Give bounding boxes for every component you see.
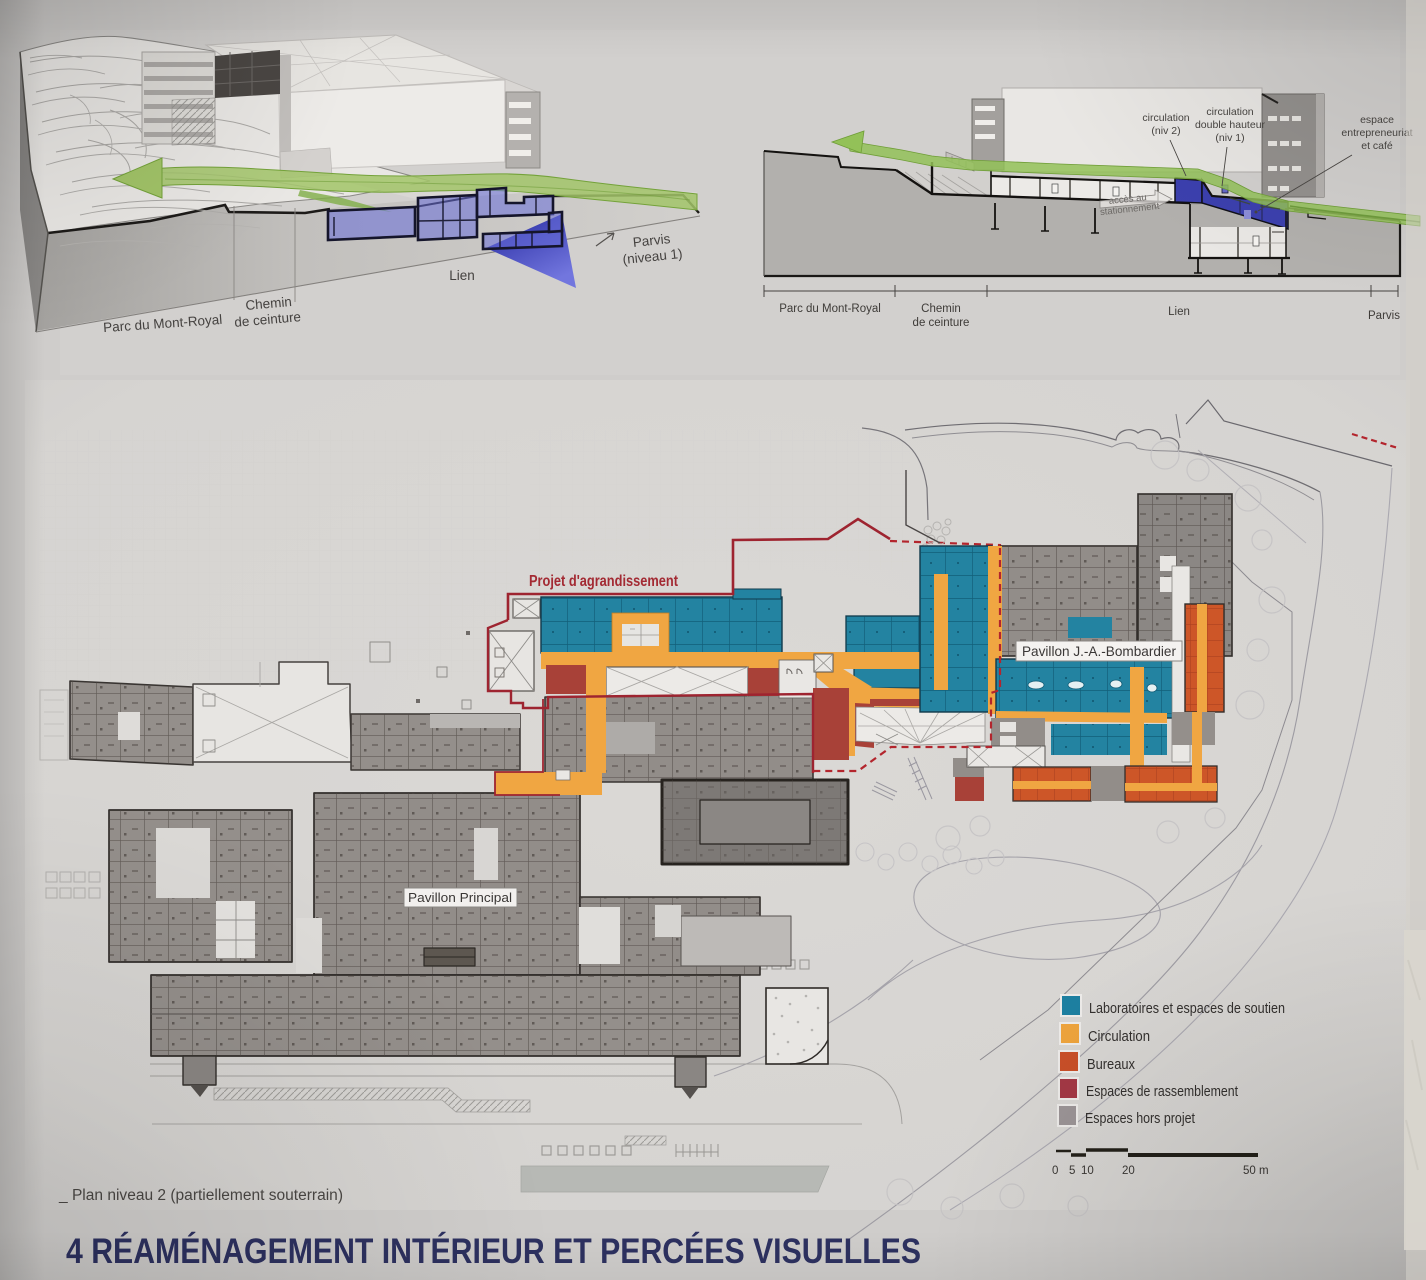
svg-text:Lien: Lien [1168, 306, 1190, 318]
svg-text:Projet d'agrandissement: Projet d'agrandissement [529, 573, 679, 590]
svg-text:Pavillon J.-A.-Bombardier: Pavillon J.-A.-Bombardier [1022, 643, 1176, 659]
svg-text:Chemin: Chemin [921, 303, 961, 315]
svg-text:Lien: Lien [449, 268, 475, 283]
svg-text:Parc du Mont-Royal: Parc du Mont-Royal [779, 303, 881, 315]
svg-text:Parvis: Parvis [1368, 310, 1400, 322]
svg-text:de ceinture: de ceinture [913, 317, 970, 329]
